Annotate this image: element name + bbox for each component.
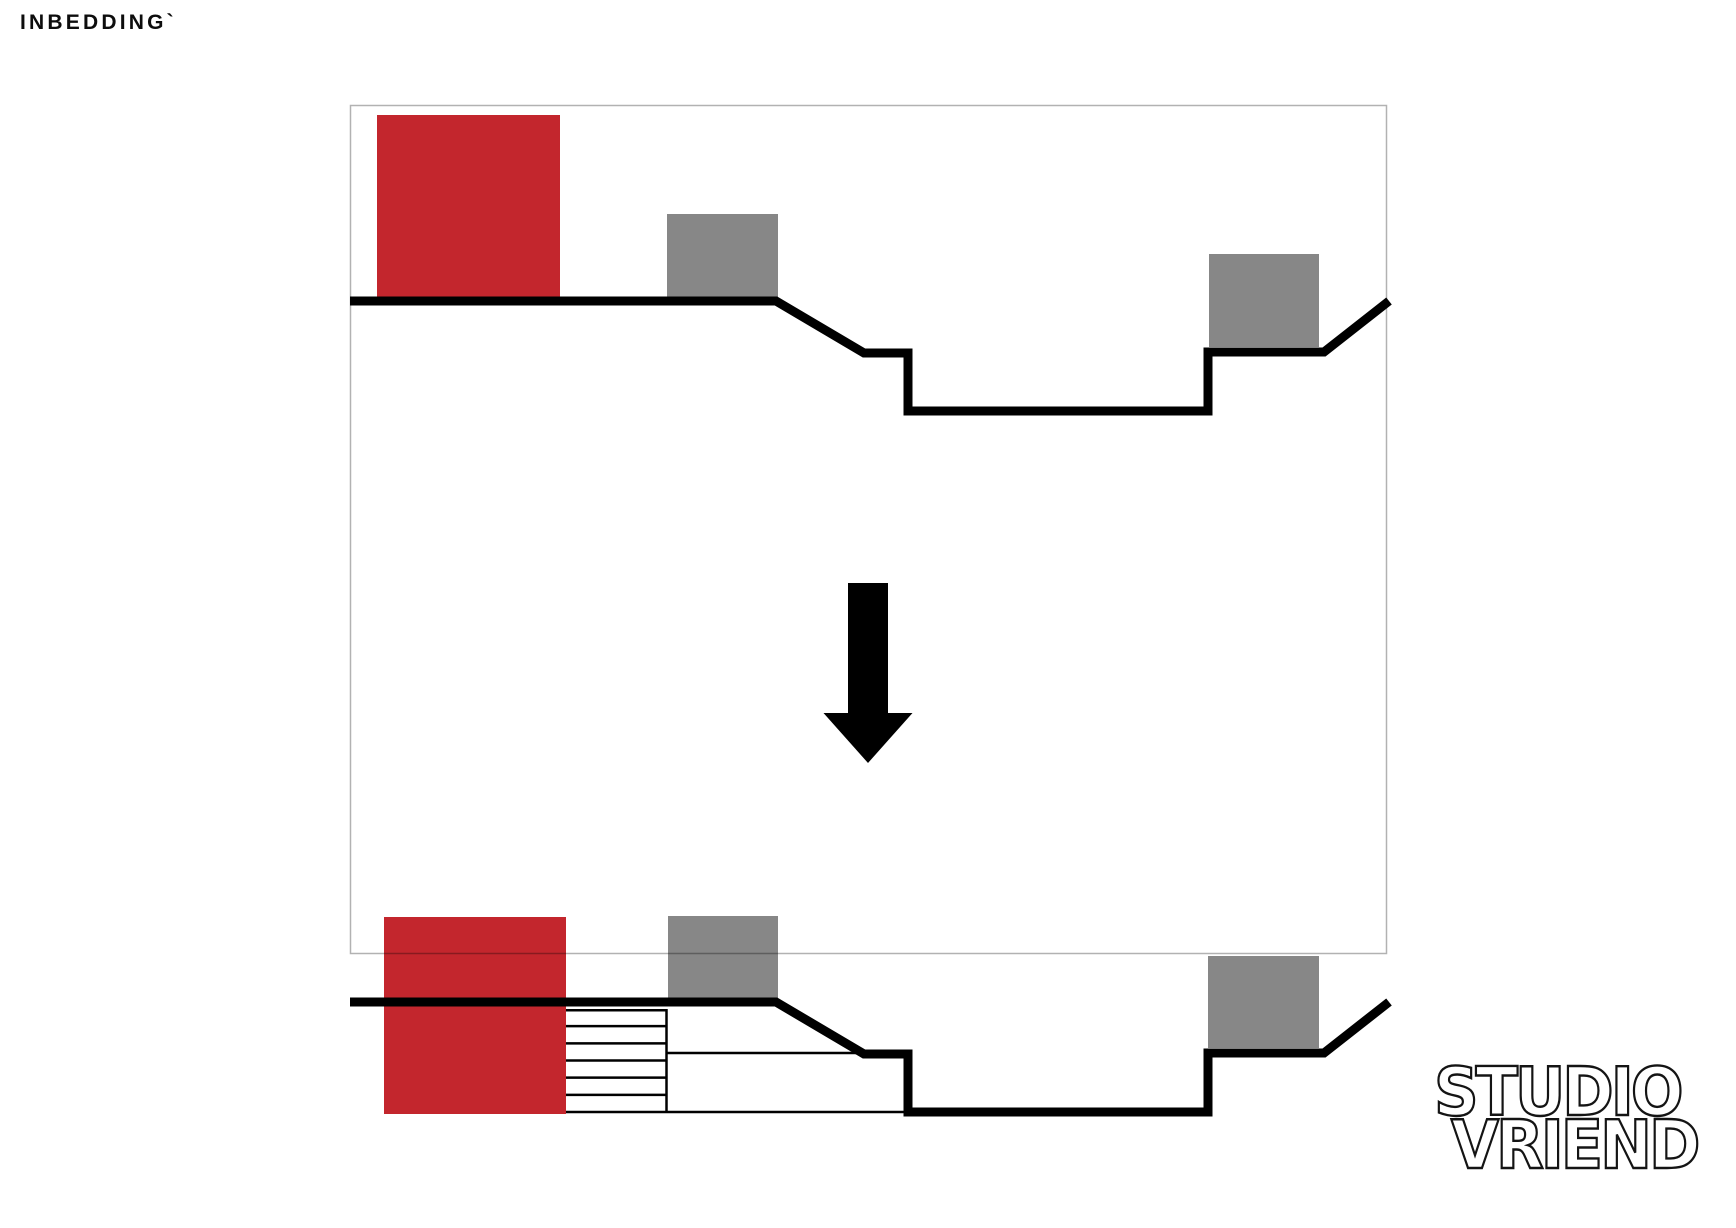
page-title: INBEDDING` bbox=[20, 11, 177, 35]
down-arrow-icon bbox=[824, 583, 913, 763]
before-neighbor-block-right bbox=[1209, 254, 1319, 347]
after-neighbor-block-left bbox=[668, 916, 778, 1000]
logo-line-vriend: VRIEND bbox=[1451, 1115, 1736, 1175]
before-tall-building-block bbox=[377, 115, 560, 297]
diagram-lines-layer bbox=[0, 0, 1736, 1228]
before-neighbor-block-left bbox=[667, 214, 778, 297]
foundation-hatch-lines bbox=[566, 1010, 667, 1095]
studio-vriend-logo: STUDIO VRIEND bbox=[1434, 1062, 1736, 1171]
after-embedded-building-block bbox=[384, 917, 566, 1114]
after-neighbor-block-right bbox=[1208, 956, 1319, 1048]
canvas: { "title": "INBEDDING`", "logo": { "line… bbox=[0, 0, 1736, 1228]
